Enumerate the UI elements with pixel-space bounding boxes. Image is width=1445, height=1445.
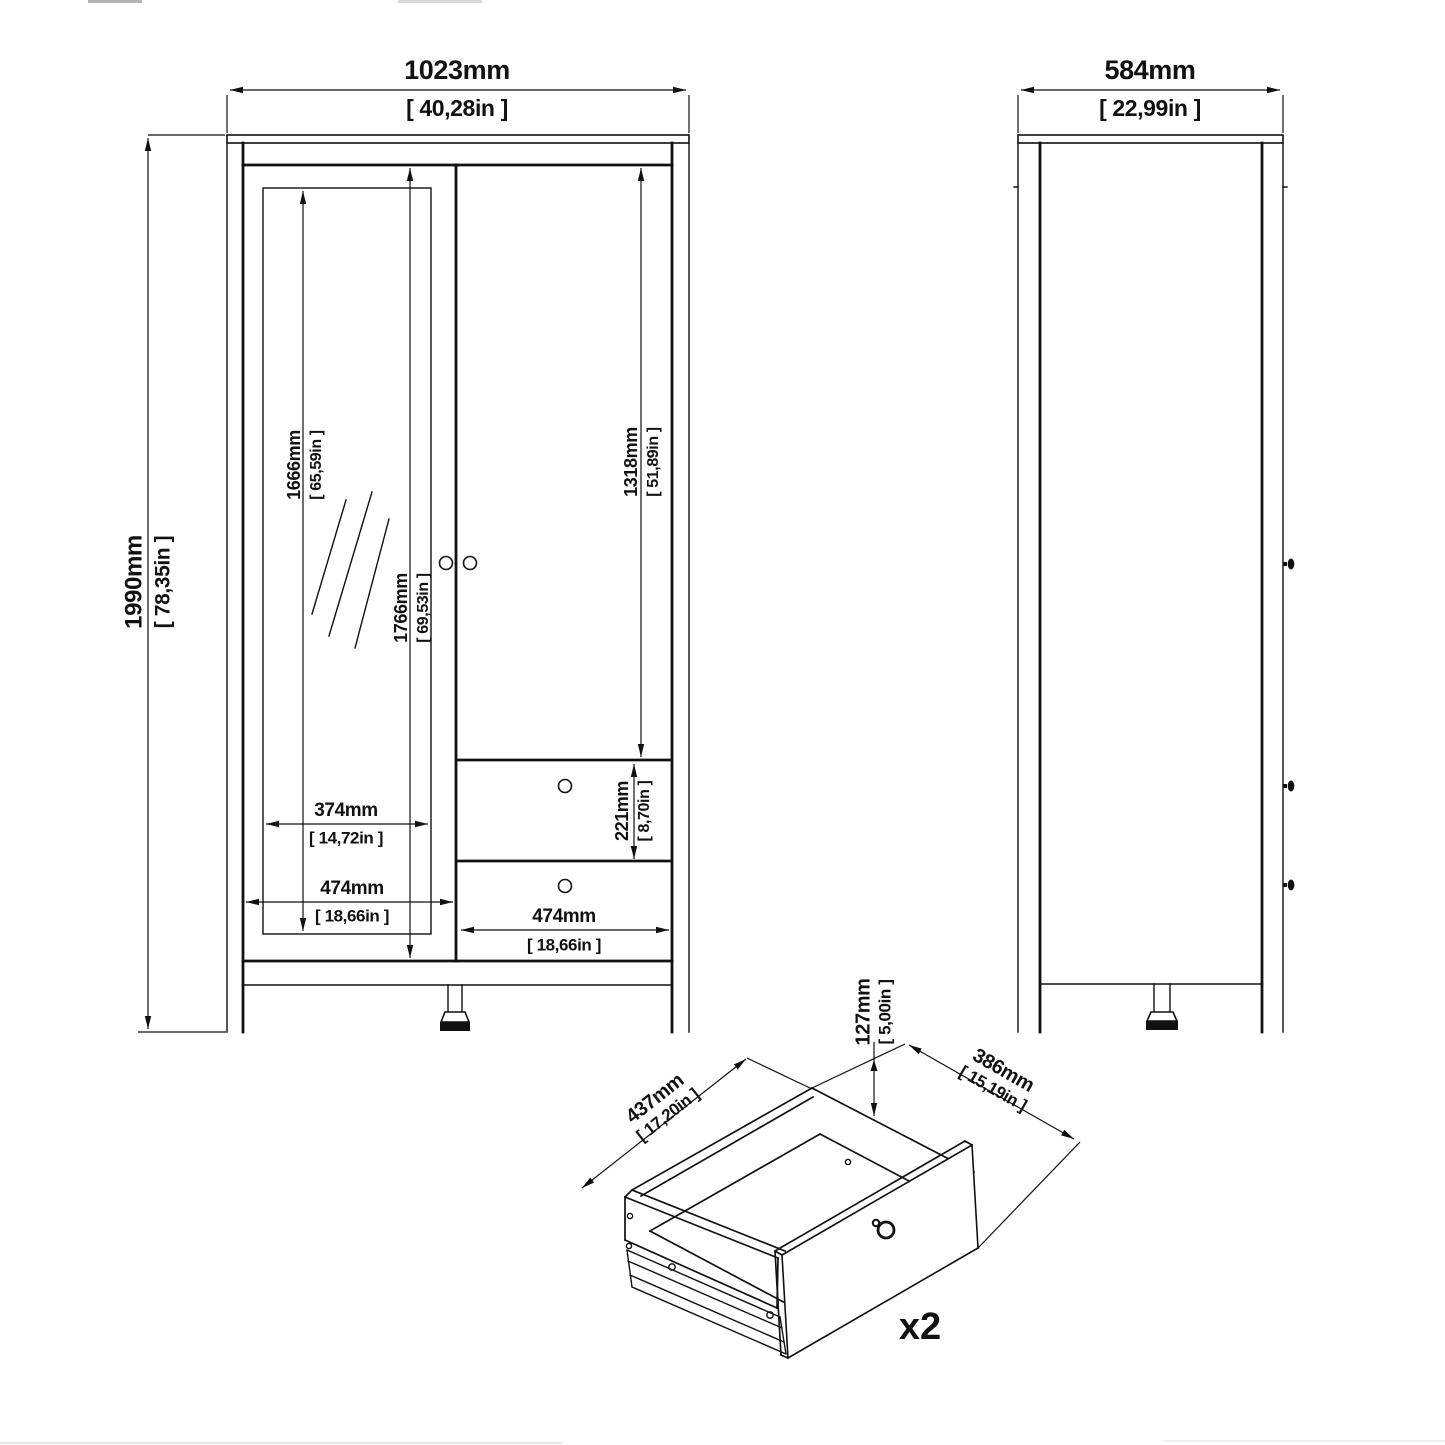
left-door-knob [440, 557, 453, 570]
drawer-front-panel [782, 1145, 978, 1358]
right-door-mm: 1318mm [621, 427, 641, 497]
drawer-depth-extension [747, 1058, 812, 1089]
drawer-height-up-arrow [871, 1060, 878, 1071]
drawer-width-label: 386mm [ 15,19in ] [956, 1043, 1041, 1115]
right-door-in: [ 51,89in ] [645, 427, 662, 496]
drawer1-knob [559, 780, 572, 793]
drawer-width-mm: 474mm [532, 906, 596, 927]
drawer-detail-knob-tail [873, 1220, 879, 1226]
side-top-cap [1018, 135, 1283, 143]
scan-artifact-bottom-1 [0, 1442, 562, 1444]
side-depth-in: [ 22,99in ] [1099, 95, 1201, 121]
front-view: 1023mm [ 40,28in ] 1990mm [ 78,35in ] 16… [120, 55, 689, 1032]
side-knob-drawer1 [1283, 781, 1294, 792]
mirror-panel [263, 188, 431, 934]
side-foot-flare [1147, 1012, 1177, 1021]
scan-artifact-bottom-2 [1162, 1440, 1445, 1442]
front-width-in: [ 40,28in ] [406, 95, 508, 121]
front-foot-base [440, 1022, 470, 1031]
drawer2-knob [559, 880, 572, 893]
drawer-detail-knob [878, 1222, 894, 1238]
drawer-quantity-label: x2 [899, 1306, 941, 1348]
drawer-detail: 437mm [ 17,20in ] 386mm [ 15,19in ] 127m… [582, 979, 1080, 1358]
drawer-depth-label: 437mm [ 17,20in ] [619, 1067, 703, 1145]
door-width-in: [ 18,66in ] [315, 906, 389, 925]
mirror-shine-2 [329, 492, 372, 636]
drawing-svg: 1023mm [ 40,28in ] 1990mm [ 78,35in ] 16… [0, 0, 1445, 1445]
front-top-cap [227, 135, 689, 143]
drawer-width-in: [ 18,66in ] [527, 935, 601, 954]
drawer-detail-height-in: [ 5,00in ] [875, 980, 894, 1045]
front-width-mm: 1023mm [404, 55, 510, 85]
mirror-width-mm: 374mm [314, 800, 378, 821]
door-width-mm: 474mm [320, 878, 384, 899]
side-knob-drawer2 [1283, 880, 1294, 891]
side-foot-base [1146, 1021, 1178, 1030]
drawer-height-mm: 221mm [612, 781, 632, 841]
drawer-detail-height-mm: 127mm [852, 979, 874, 1046]
mirror-height-in: [ 65,59in ] [308, 430, 325, 499]
mirror-shine-3 [355, 519, 389, 648]
side-depth-mm: 584mm [1104, 55, 1195, 85]
door-height-in: [ 69,53in ] [415, 573, 432, 642]
scan-artifact-top-2 [398, 0, 482, 3]
drawer-back-screw [845, 1159, 850, 1164]
side-knob-door [1283, 559, 1294, 570]
side-foot-stem [1154, 984, 1170, 1012]
mirror-width-in: [ 14,72in ] [309, 828, 383, 847]
right-door-knob [464, 557, 477, 570]
front-foot-flare [441, 1012, 469, 1022]
mirror-height-mm: 1666mm [284, 430, 304, 500]
front-height-in: [ 78,35in ] [152, 536, 175, 628]
drawer-height-in: [ 8,70in ] [636, 780, 653, 841]
drawer-panel-screw-1 [627, 1213, 632, 1218]
scan-artifact-top-1 [88, 0, 142, 3]
front-foot-stem [448, 985, 462, 1012]
side-view: 584mm [ 22,99in ] [1014, 55, 1294, 1032]
door-height-mm: 1766mm [391, 573, 411, 643]
front-height-mm: 1990mm [120, 535, 147, 629]
drawer-panel-screw-2 [626, 1243, 631, 1248]
technical-drawing-wardrobe: 1023mm [ 40,28in ] 1990mm [ 78,35in ] 16… [0, 0, 1445, 1445]
